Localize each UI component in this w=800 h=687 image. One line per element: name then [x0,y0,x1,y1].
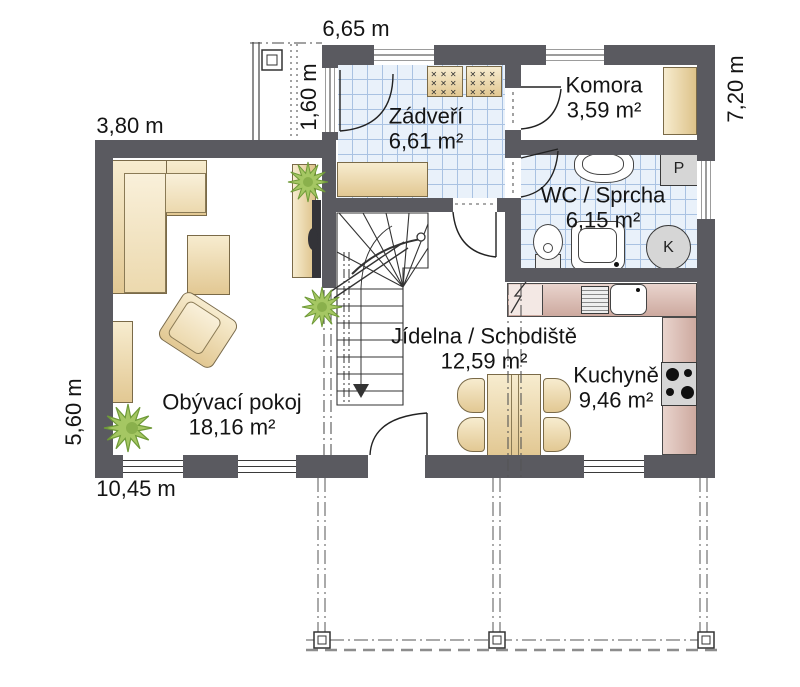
wall [182,455,237,478]
room-name: Zádveří [389,104,464,129]
pantry-door-opening [505,88,521,130]
wall [322,158,336,288]
wall [95,140,113,478]
room-label-living: Obývací pokoj 18,16 m² [162,390,301,439]
terrace-post [698,632,714,648]
pantry-door [521,87,561,129]
entry-bench [337,162,428,197]
wall [505,140,715,155]
sofa-seat-left [124,173,166,293]
window [583,455,645,478]
shoe-rack: ✕✕✕ ✕✕✕ ✕✕✕ [466,66,502,97]
shoe-rack: ✕✕✕ ✕✕✕ ✕✕✕ [427,66,463,97]
stair-down-arrow [353,384,369,398]
dining-chair [543,417,571,452]
room-area: 9,46 m² [573,388,659,413]
wall [505,268,715,282]
room-name: Jídelna / Schodiště [391,324,577,349]
dimension-right: 7,20 m [723,55,749,122]
rack-pattern: ✕✕✕ [467,70,501,79]
room-label-wc: WC / Sprcha 6,15 m² [541,183,666,232]
wall [332,198,453,212]
sideboard [111,321,133,403]
stove-burner [666,368,679,381]
hall-door-opening [453,198,497,212]
table-leaf-split [511,375,519,455]
plant-icon [302,287,342,327]
boiler-label: K [663,239,674,257]
armchair-seat [166,299,222,356]
stair-handrail [352,239,421,274]
room-area: 3,59 m² [565,98,642,123]
terrace-post [314,632,330,648]
wall [425,455,583,478]
dimension-top: 6,65 m [322,16,389,42]
stair-walkline [361,226,392,384]
wall [697,218,715,478]
dimension-porch: 1,60 m [296,63,322,130]
room-name: Kuchyně [573,363,659,388]
window [697,160,715,220]
room-area: 6,15 m² [541,208,666,233]
sink-basin [582,153,624,175]
dimension-bottom: 10,45 m [96,476,176,502]
rack-pattern: ✕✕✕ [467,79,501,88]
entry-door-threshold [322,67,338,133]
dining-chair [457,378,485,413]
dining-chair [543,378,571,413]
hall-door [453,212,496,257]
window [122,455,184,478]
wall [295,455,368,478]
pantry-shelf [663,67,697,135]
washing-machine: P [660,151,698,186]
wall [322,45,373,65]
stove-burner [666,388,674,396]
porch-post [262,50,282,70]
dining-chair [457,417,485,452]
terrace-door [370,413,427,455]
dimension-left: 5,60 m [61,378,87,445]
kitchen-sink-basin [610,284,647,315]
wall [643,455,715,478]
faucet [636,288,640,292]
washing-machine-label: P [674,160,685,178]
terrace-door-opening [368,455,425,478]
staircase [330,213,428,405]
wall [95,140,336,158]
wall [433,45,545,65]
tv-bump [308,228,318,250]
rack-pattern: ✕✕✕ [467,88,501,97]
counter-panel [509,285,543,315]
dining-table [487,374,541,456]
room-area: 6,61 m² [389,129,464,154]
room-name: Komora [565,73,642,98]
stove-burner [681,386,694,399]
rack-pattern: ✕✕✕ [428,79,462,88]
room-name: Obývací pokoj [162,390,301,415]
window [237,455,297,478]
floor-plan: ✕✕✕ ✕✕✕ ✕✕✕ ✕✕✕ ✕✕✕ ✕✕✕ P K [0,0,800,687]
toilet-detail [543,243,553,253]
armchair [156,289,240,371]
room-label-kitchen: Kuchyně 9,46 m² [573,363,659,412]
room-area: 18,16 m² [162,415,301,440]
kitchen-sink-drainer [581,286,609,314]
terrace-post [489,632,505,648]
terrace-lines [306,478,718,650]
stove-burner [684,369,692,377]
dimension-upper-left: 3,80 m [96,113,163,139]
coffee-table [187,235,230,295]
room-label-entry-hall: Zádveří 6,61 m² [389,104,464,153]
room-label-pantry: Komora 3,59 m² [565,73,642,122]
shower-drain [614,262,619,267]
wc-door-opening [505,158,521,198]
shower-inner [578,228,617,263]
rack-pattern: ✕✕✕ [428,88,462,97]
room-label-dining: Jídelna / Schodiště 12,59 m² [391,324,577,373]
rack-pattern: ✕✕✕ [428,70,462,79]
window [373,45,435,65]
window [545,45,605,65]
stove [661,362,697,406]
wall [505,45,521,88]
wall [497,198,521,212]
room-area: 12,59 m² [391,349,577,374]
room-name: WC / Sprcha [541,183,666,208]
